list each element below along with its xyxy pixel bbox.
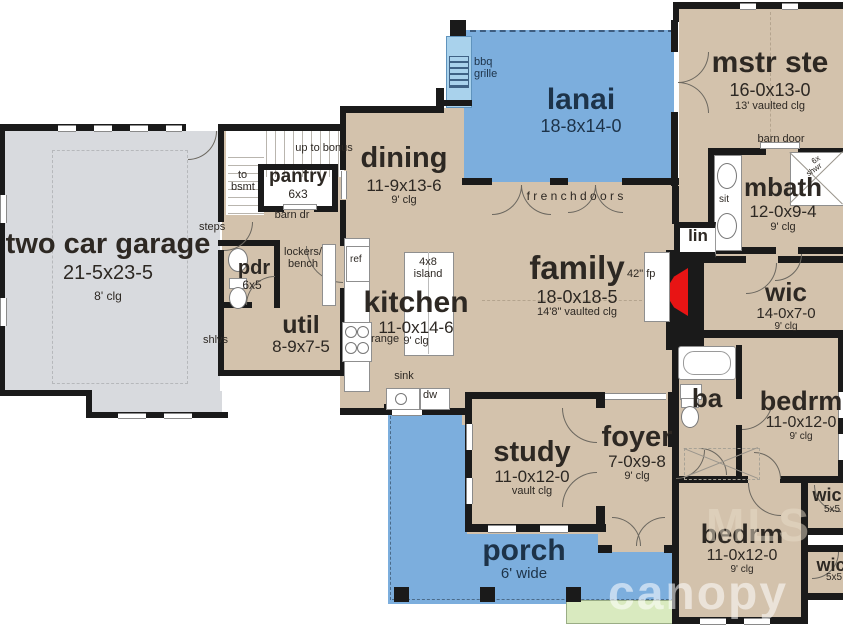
note-lockers: bench <box>288 259 318 271</box>
room-label-family: family <box>529 251 624 286</box>
window-marker <box>166 125 182 132</box>
room-clg-garage: 8' clg <box>94 290 122 303</box>
room-dims-mbath: 12-0x9-4 <box>749 203 816 221</box>
sink-basin <box>395 393 407 405</box>
note-up-to-bonus: up to bonus <box>295 143 353 155</box>
note-shlvs: shlvs <box>203 335 228 347</box>
room-dims-pdr: 6x5 <box>242 279 261 292</box>
room-label-wic-upper: wic <box>812 486 841 505</box>
wall <box>218 250 224 376</box>
wall <box>465 392 603 399</box>
window-marker <box>130 125 148 132</box>
lanai-post <box>450 20 466 36</box>
room-label-foyer: foyer <box>602 422 673 452</box>
wall <box>700 330 843 338</box>
cased-opening <box>341 171 347 199</box>
window-marker <box>94 125 112 132</box>
room-clg-study: vault clg <box>512 486 552 498</box>
wall <box>550 178 568 185</box>
note-ref: ref <box>350 255 362 266</box>
lockers-bench <box>322 244 336 306</box>
garage-door-opening <box>186 124 218 131</box>
range-burner <box>357 342 369 354</box>
watermark-secondary: MLS <box>706 498 812 552</box>
window-marker <box>0 195 7 223</box>
lanai-screen-line <box>470 30 674 32</box>
room-label-study: study <box>493 437 570 467</box>
wall <box>664 545 679 553</box>
wall <box>0 124 5 396</box>
wall <box>798 247 843 254</box>
room-dims-bedrm-right: 11-0x12-0 <box>766 415 837 432</box>
room-dims-wic-master: 14-0x7-0 <box>756 306 815 322</box>
wall <box>671 112 678 186</box>
room-clg-bedrm-right: 9' clg <box>789 432 812 443</box>
window-marker <box>488 525 516 533</box>
porch-post <box>566 587 581 602</box>
note-fireplace: 42" fp <box>627 269 655 281</box>
wall <box>708 148 766 155</box>
window-marker <box>0 298 7 326</box>
wall <box>465 392 472 532</box>
wall <box>780 476 843 483</box>
note-bbq: bbq <box>474 57 492 69</box>
room-clg-kitchen: 9' clg <box>403 336 428 348</box>
wall <box>222 370 348 376</box>
note-range: range <box>371 334 399 346</box>
wall <box>736 345 742 399</box>
wall <box>462 178 492 185</box>
room-dims-lanai: 18-8x14-0 <box>540 117 621 136</box>
room-label-bedrm-right: bedrm <box>760 387 843 415</box>
note-sit: sit <box>719 195 729 206</box>
room-dims-wic-upper: 5x5 <box>824 505 840 516</box>
wall <box>314 206 338 212</box>
room-label-garage: two car garage <box>6 229 211 259</box>
wall <box>86 412 228 418</box>
note-barn-door: barn door <box>757 134 804 146</box>
window-marker <box>782 3 798 10</box>
garage-floor-bump <box>90 391 222 414</box>
window-marker <box>466 478 473 504</box>
room-dims-family: 18-0x18-5 <box>536 288 617 307</box>
room-clg-foyer: 9' clg <box>624 471 649 483</box>
note-french-doors: f r e n c h d o o r s <box>527 190 624 203</box>
wall <box>596 392 605 408</box>
wall <box>596 506 605 524</box>
room-clg-mbath: 9' clg <box>770 222 795 234</box>
wall <box>679 2 843 9</box>
room-label-lin: lin <box>688 227 708 245</box>
fireplace-niche <box>644 252 670 322</box>
watermark-primary: canopy 20 <box>608 566 843 632</box>
room-dims-garage: 21-5x23-5 <box>63 263 153 284</box>
room-clg-family: 14'8" vaulted clg <box>537 307 617 319</box>
room-dims-pantry: 6x3 <box>288 188 307 201</box>
room-clg-dining: 9' clg <box>391 195 416 207</box>
note-to-bsmt: to <box>238 170 247 182</box>
note-bbq: grille <box>474 69 497 81</box>
room-label-pdr: pdr <box>238 258 270 279</box>
room-dims-mstr-ste: 16-0x13-0 <box>729 81 810 100</box>
room-dims-porch: 6' wide <box>501 566 547 582</box>
range-burner <box>357 326 369 338</box>
room-label-pantry: pantry <box>269 167 327 187</box>
room-clg-mstr-ste: 13' vaulted clg <box>735 101 805 113</box>
window-marker <box>118 413 146 419</box>
wall <box>218 124 224 222</box>
window-marker <box>740 3 756 10</box>
wall <box>438 100 472 106</box>
room-label-dining: dining <box>361 143 448 173</box>
wall <box>332 164 338 212</box>
room-label-ba: ba <box>692 385 722 412</box>
room-label-kitchen: kitchen <box>363 287 468 319</box>
wall <box>258 164 264 212</box>
note-sink: sink <box>394 371 414 383</box>
wall <box>598 545 612 553</box>
room-label-wic-master: wic <box>765 279 807 306</box>
cased-opening <box>605 393 666 400</box>
room-label-porch: porch <box>482 535 565 567</box>
window-marker <box>164 413 192 419</box>
bbq-grille-symbol <box>449 56 469 88</box>
tub-basin <box>683 351 731 375</box>
wall <box>0 390 92 396</box>
note-barn-dr: barn dr <box>275 210 310 222</box>
window-marker <box>466 424 473 450</box>
range-burner <box>345 342 357 354</box>
room-dims-study: 11-0x12-0 <box>494 468 569 486</box>
window-marker <box>58 125 76 132</box>
room-label-mstr-ste: mstr ste <box>712 47 829 79</box>
range-burner <box>345 326 357 338</box>
porch-edge-line <box>390 416 391 600</box>
wall <box>671 20 678 52</box>
room-label-util: util <box>282 312 320 338</box>
note-island: island <box>414 269 443 281</box>
note-island: 4x8 <box>419 257 437 269</box>
wall <box>673 2 679 22</box>
porch-post <box>480 587 495 602</box>
floor-plan: two car garage 21-5x23-5 8' clg pantry 6… <box>0 0 843 632</box>
room-label-lanai: lanai <box>547 84 615 116</box>
room-dims-dining: 11-9x13-6 <box>366 177 441 195</box>
wall <box>672 186 679 224</box>
room-dims-util: 8-9x7-5 <box>272 338 330 356</box>
window-marker <box>540 525 568 533</box>
porch-post <box>394 587 409 602</box>
vanity-sink <box>717 163 737 189</box>
note-dw: dw <box>423 390 437 402</box>
vanity-sink <box>717 213 737 239</box>
wall <box>465 524 606 532</box>
window-marker <box>838 434 843 460</box>
note-steps: steps <box>199 222 225 234</box>
window-marker <box>392 409 422 416</box>
note-lockers: lockers/ <box>284 247 322 259</box>
room-clg-wic-master: 9' clg <box>774 322 797 333</box>
note-to-bsmt: bsmt <box>231 182 255 194</box>
room-dims-foyer: 7-0x9-8 <box>608 453 666 471</box>
wall <box>340 106 444 113</box>
wall <box>340 106 346 170</box>
